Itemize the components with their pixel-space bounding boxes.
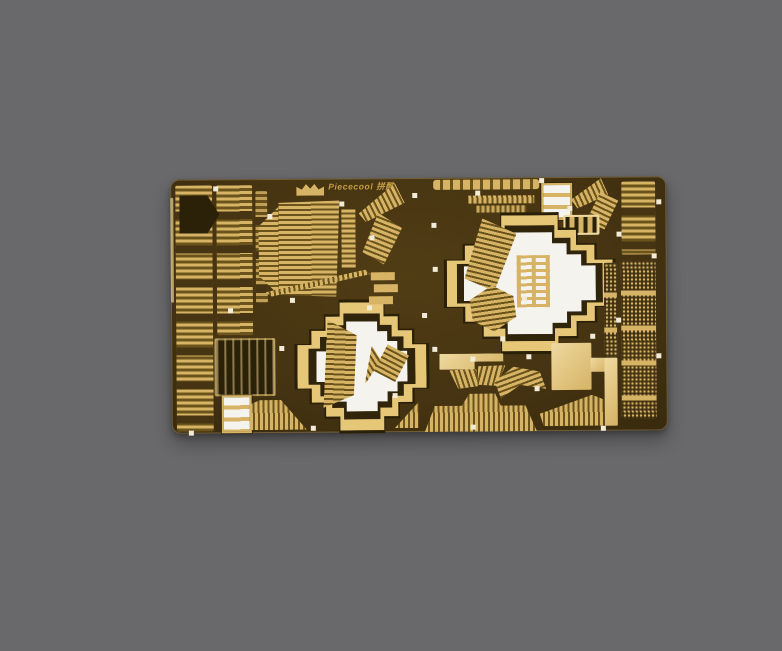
- rivet-pair-bits: [374, 284, 398, 292]
- cutout-cross-small: [297, 302, 427, 431]
- solid-gold-bar: [604, 358, 617, 426]
- thin-ridge-strip-2: [476, 205, 526, 212]
- metal-fret-sheet: Piececool 拼酷: [170, 176, 668, 433]
- mesh-grid-strip-main: [621, 260, 657, 418]
- thin-ridge-strip-1: [468, 195, 534, 203]
- bottom-roof-trapezoid-right: [540, 395, 604, 426]
- window-panes-part-bottom-left: [222, 395, 252, 433]
- ladder-parts-column-2: [216, 185, 253, 335]
- brand-text: Piececool 拼酷: [328, 180, 394, 192]
- mesh-grid-strip-narrow: [604, 263, 618, 357]
- dark-grill-square-part: [214, 338, 275, 396]
- bottom-roof-trapezoid-big: [425, 393, 537, 432]
- ladder-strip-right-top: [621, 181, 656, 254]
- roof-trapezoid-part: [323, 320, 357, 409]
- rivet-pair-bits: [371, 272, 395, 280]
- sheet-edge-highlight: [170, 198, 174, 303]
- photo-background: Piececool 拼酷: [0, 0, 782, 651]
- solid-gold-square-part: [551, 343, 591, 390]
- wall-ladder-assembly: [517, 255, 550, 307]
- rivet-pair-bits: [369, 296, 393, 304]
- roof-ridge-vertical-strip: [341, 209, 355, 267]
- dark-notched-part: [179, 195, 219, 233]
- cutout-cross-large: [446, 215, 613, 352]
- scalloped-ridge-strip: [433, 179, 539, 190]
- cut-marks: [170, 180, 173, 183]
- crown-icon: [296, 183, 324, 196]
- solid-gold-arm: [590, 358, 605, 372]
